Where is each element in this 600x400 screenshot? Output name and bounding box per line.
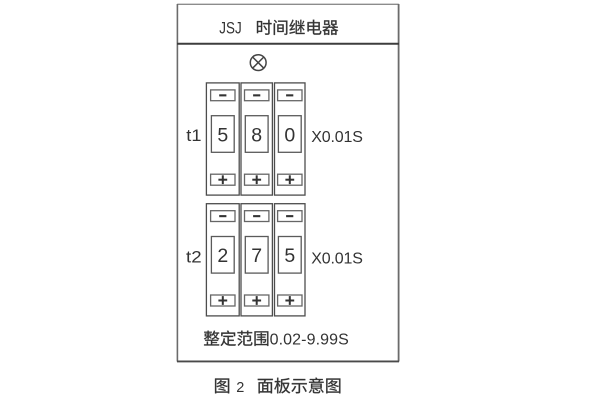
svg-text:2: 2 bbox=[217, 245, 228, 267]
svg-text:X0.01S: X0.01S bbox=[311, 129, 363, 146]
svg-text:JSJ: JSJ bbox=[219, 20, 241, 38]
svg-text:0: 0 bbox=[284, 124, 295, 146]
svg-text:8: 8 bbox=[251, 124, 262, 146]
svg-text:2: 2 bbox=[236, 380, 244, 396]
svg-text:5: 5 bbox=[284, 245, 295, 267]
svg-text:7: 7 bbox=[251, 245, 262, 267]
svg-text:X0.01S: X0.01S bbox=[311, 250, 363, 267]
svg-text:t1: t1 bbox=[186, 127, 201, 145]
svg-text:0.02-9.99S: 0.02-9.99S bbox=[270, 332, 349, 349]
svg-text:t2: t2 bbox=[186, 249, 202, 267]
svg-text:5: 5 bbox=[217, 124, 228, 146]
